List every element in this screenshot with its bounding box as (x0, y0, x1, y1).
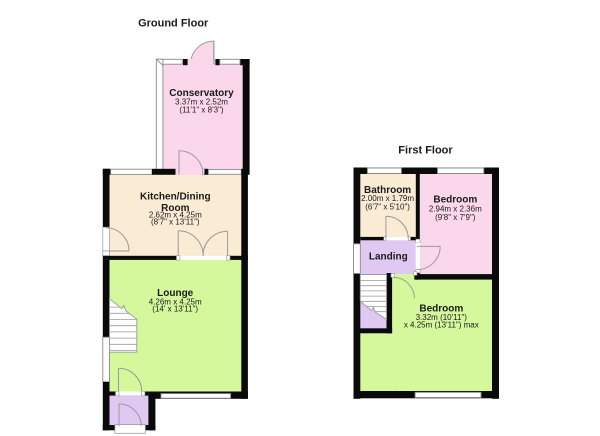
svg-text:(8'7" x 13'11"): (8'7" x 13'11") (151, 218, 200, 227)
svg-text:(6'7" x 5'10"): (6'7" x 5'10") (365, 202, 410, 211)
svg-text:First Floor: First Floor (398, 145, 453, 157)
svg-text:(9'8" x 7'9"): (9'8" x 7'9") (435, 213, 476, 222)
svg-text:(14' x 13'11"): (14' x 13'11") (152, 304, 198, 313)
svg-text:Ground Floor: Ground Floor (138, 17, 209, 29)
svg-text:Kitchen/Dining: Kitchen/Dining (140, 192, 211, 203)
svg-text:Landing: Landing (369, 251, 408, 262)
svg-text:(11'1" x 8'3"): (11'1" x 8'3") (179, 106, 223, 115)
svg-text:2.94m x 2.36m: 2.94m x 2.36m (429, 205, 482, 214)
svg-text:x 4.25m (13'11") max: x 4.25m (13'11") max (404, 320, 479, 329)
